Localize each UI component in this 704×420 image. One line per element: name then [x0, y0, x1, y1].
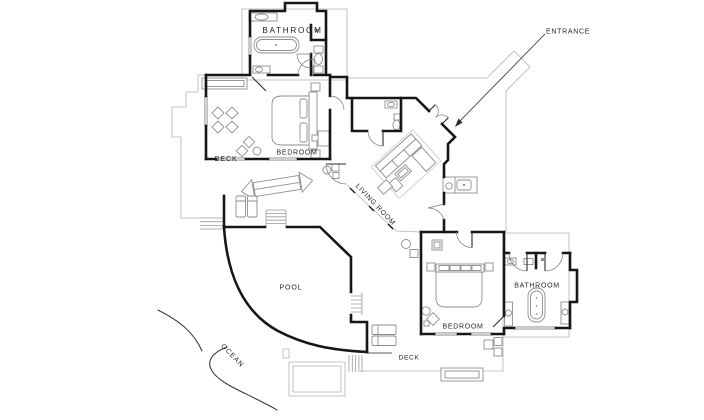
label-bedroom-right: BEDROOM [442, 324, 483, 331]
loungers-deck-bottom [372, 325, 396, 346]
floor-plan-drawing: BATHROOM ENTRANCE BEDROOM DECK LIVING RO… [0, 0, 704, 420]
bed-right [427, 240, 493, 307]
loungers-pool-top [236, 196, 257, 217]
bench-deck-left [202, 78, 247, 89]
label-bedroom-left: BEDROOM [276, 150, 317, 157]
villa-floor-plan: BATHROOM ENTRANCE BEDROOM DECK LIVING RO… [0, 0, 704, 420]
entrance-leader [455, 34, 545, 127]
walls [206, 3, 577, 352]
label-ocean: OCEAN [219, 343, 244, 369]
bench-deck-bottom [441, 368, 483, 381]
door-leaf-bedroom-left [252, 77, 266, 91]
kitchen-counter [443, 177, 477, 193]
stairs-deck-left [200, 218, 223, 229]
entrance-door-leaves [429, 105, 448, 124]
powder-room-fixtures [385, 101, 400, 130]
deck-chairs [212, 107, 238, 133]
label-entrance: ENTRANCE [546, 29, 590, 36]
deck-table-right [484, 338, 502, 357]
corner-chair [402, 240, 419, 258]
label-living-room: LIVING ROOM [354, 183, 397, 227]
label-pool: POOL [279, 285, 302, 292]
chair-near-bedroom-door [323, 164, 339, 179]
bathtub-right [528, 288, 545, 322]
ocean-waves [158, 310, 277, 410]
label-bathroom-top: BATHROOM [262, 26, 322, 35]
entrance-jamb-left [401, 98, 429, 111]
toilet-top [313, 29, 323, 73]
door-leaf-bedroom-bathroom [493, 316, 504, 327]
furniture [202, 13, 569, 381]
label-deck-left: DECK [214, 156, 237, 163]
stairs-pool-top [266, 210, 286, 227]
label-deck-bottom: DECK [399, 355, 420, 362]
chairs-right-bedroom [422, 307, 440, 326]
bed-left [272, 83, 320, 158]
lower-platform [289, 362, 345, 396]
chairs-left-bedroom [236, 136, 261, 156]
stairs-pool-right [351, 292, 362, 315]
label-bathroom-right: BATHROOM [514, 283, 560, 290]
stairs-deck-bottom [349, 355, 362, 372]
bathtub-top [254, 37, 299, 53]
